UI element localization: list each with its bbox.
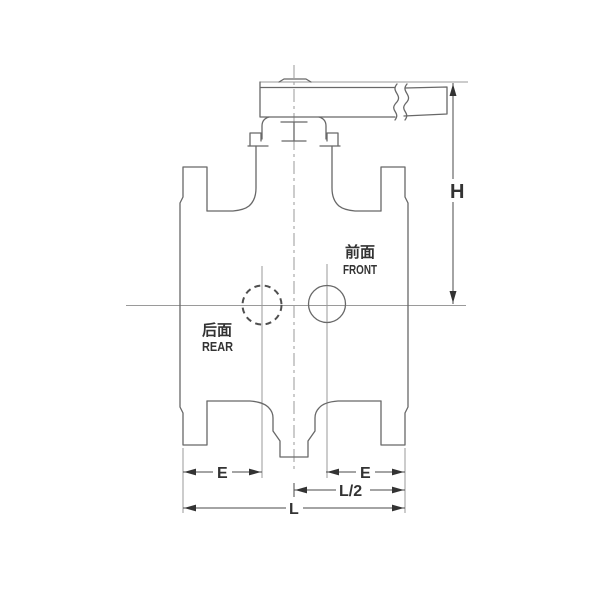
bonnet-lug-left (250, 133, 261, 146)
dimension-H: H (446, 83, 469, 304)
l-arrow-left (184, 505, 196, 512)
centerlines (126, 65, 466, 478)
handle-assembly (260, 79, 468, 120)
neck-left (207, 146, 256, 211)
h-arrow-down (450, 291, 457, 303)
e-right-arrow-right (392, 469, 404, 476)
valve-drawing: H E E L/2 L 前面 FRONT (0, 0, 600, 600)
front-label-en: FRONT (343, 262, 377, 277)
h-arrow-up (450, 84, 457, 96)
rear-label-en: REAR (202, 339, 234, 354)
e-left-label: E (217, 465, 228, 482)
dimension-E-left: E (183, 448, 262, 513)
e-left-arrow-left (184, 469, 196, 476)
stem-and-bonnet (248, 117, 340, 146)
gland-left (262, 117, 269, 139)
rear-label-cn: 后面 (202, 322, 232, 339)
dimension-L: L (183, 498, 405, 518)
handle-break-line-2 (404, 84, 409, 120)
handle-bar (260, 82, 395, 117)
front-label-cn: 前面 (345, 243, 375, 261)
dimension-L2: L/2 (294, 479, 405, 500)
gland-right (319, 117, 326, 139)
l2-label: L/2 (339, 483, 362, 500)
valve-drawing-canvas: H E E L/2 L 前面 FRONT (0, 0, 600, 600)
annotation-rear: 后面 REAR (202, 322, 234, 354)
stem-mark (281, 122, 307, 141)
l2-arrow-left (295, 487, 307, 494)
neck-right (332, 146, 381, 211)
l-arrow-right (392, 505, 404, 512)
e-right-arrow-left (327, 469, 339, 476)
e-left-arrow-right (249, 469, 261, 476)
h-label: H (450, 181, 464, 203)
l2-arrow-right (392, 487, 404, 494)
annotation-front: 前面 FRONT (343, 243, 377, 277)
l-label: L (289, 501, 299, 518)
handle-break-line-1 (394, 84, 399, 120)
handle-end-grip (404, 87, 447, 116)
bonnet-lug-right (327, 133, 338, 146)
